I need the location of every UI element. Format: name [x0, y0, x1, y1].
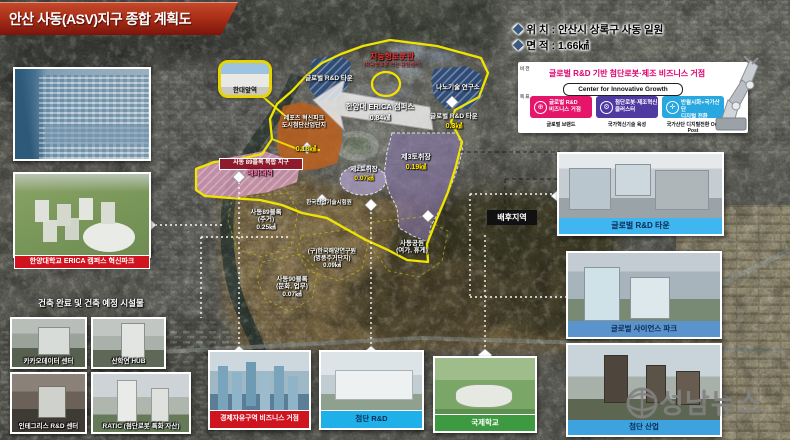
svg-text:성남뉴스: 성남뉴스	[659, 389, 762, 419]
